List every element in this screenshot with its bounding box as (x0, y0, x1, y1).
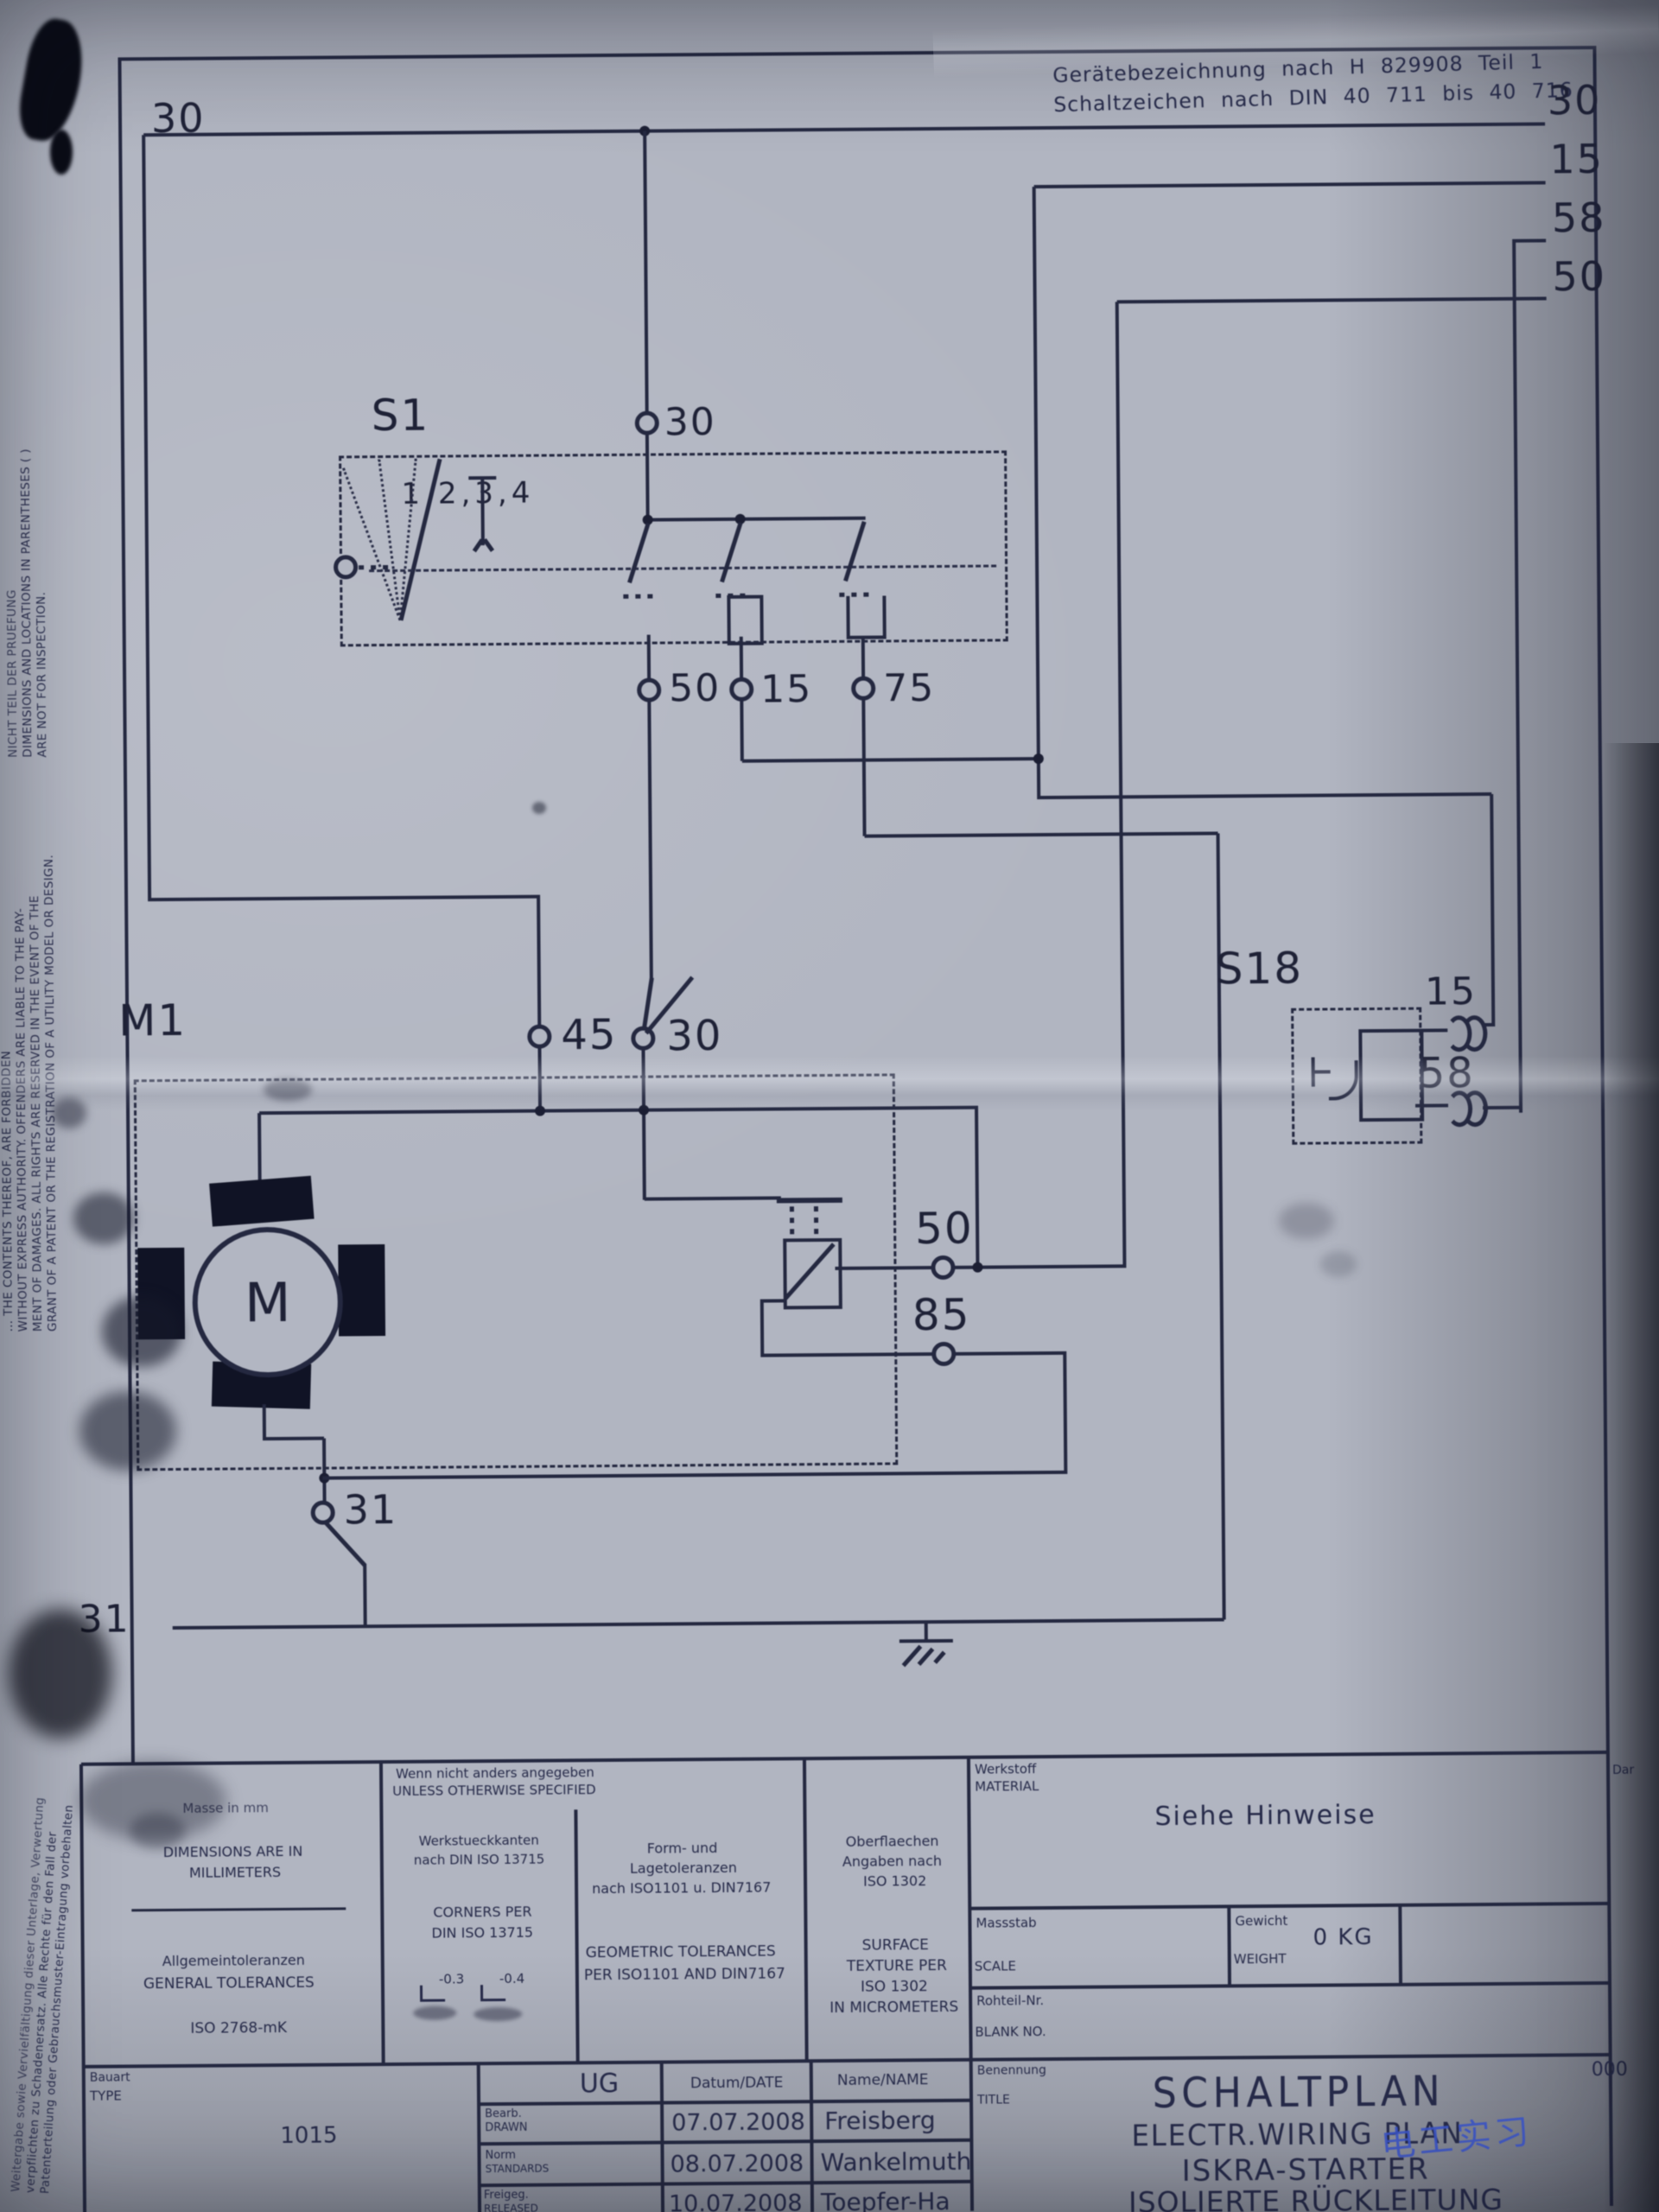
terminal-solenoid-50 (931, 1255, 955, 1280)
wire-segment (322, 1439, 327, 1504)
edge-symbol-icon (420, 1986, 445, 2002)
gen-tol-de: Allgemeintoleranzen (162, 1952, 305, 1969)
terminal-solenoid-85-label: 85 (912, 1290, 971, 1341)
wire-segment (660, 2063, 664, 2212)
row-std-role-de: Norm (485, 2149, 516, 2162)
s1-contact-bracket (846, 595, 886, 639)
surf-en4: IN MICROMETERS (829, 1999, 958, 2017)
row-rel-role-de: Freigeg. (484, 2189, 529, 2202)
terminal-s1-75-label: 75 (883, 666, 935, 710)
wire-segment (742, 757, 1040, 763)
terminal-s1-30 (635, 411, 659, 435)
motor-brush (209, 1176, 315, 1227)
edge-note-partial: Dar (1612, 1764, 1634, 1777)
motor-symbol: M (192, 1226, 343, 1377)
row-rel-date: 10.07.2008 (669, 2190, 803, 2212)
dims-note-en2: MILLIMETERS (189, 1864, 281, 1881)
doc-number-partial: 000 (1592, 2059, 1628, 2081)
wire-segment (149, 895, 540, 902)
drawing-title-line1: SCHALTPLAN (1152, 2067, 1445, 2118)
s1-positions: 1,2,3,4 (401, 476, 534, 512)
edge-symbol-icon (480, 1985, 505, 2001)
row-rel-name: Toepfer-Ha (821, 2187, 950, 2212)
terminal-s1-30-label: 30 (664, 400, 716, 444)
form-en2: PER ISO1101 AND DIN7167 (584, 1965, 785, 1984)
solenoid-coil (783, 1238, 842, 1310)
gen-tol-std: ISO 2768-mK (190, 2019, 287, 2037)
wire-segment (861, 636, 865, 680)
wire-segment (1033, 187, 1041, 799)
wire-segment (379, 1762, 385, 2064)
wire-segment (1039, 792, 1491, 799)
wire-segment (925, 1622, 928, 1643)
unless-de: Wenn nicht anders angegeben (396, 1764, 594, 1782)
terminal-s1-75 (851, 677, 875, 701)
wire-segment (740, 701, 744, 761)
corners-en2: DIN ISO 13715 (431, 1924, 533, 1942)
wire-segment (142, 135, 151, 901)
wire-segment (1033, 753, 1044, 764)
wire-segment (760, 1300, 765, 1356)
type-label-de: Bauart (90, 2070, 130, 2084)
wire-segment (865, 831, 1218, 837)
wire-segment (468, 476, 496, 480)
wire-segment (537, 897, 541, 1027)
ground-icon (899, 1639, 955, 1676)
wire-segment (814, 1206, 818, 1239)
wire-segment (643, 131, 649, 415)
motor-letter: M (245, 1270, 291, 1333)
corner-value-2: -0.4 (499, 1971, 524, 1986)
wire-segment (933, 1651, 945, 1664)
form-de1: Form- und (647, 1840, 718, 1857)
wire-segment (975, 1108, 979, 1269)
bus-label-31: 31 (78, 1597, 130, 1641)
title-label-de: Benennung (977, 2063, 1046, 2078)
row-rel-role-en: RELEASED (484, 2202, 538, 2212)
motor-brush (338, 1244, 385, 1336)
terminal-s1-15 (729, 677, 753, 702)
wire-segment (257, 1113, 262, 1181)
drawing-sheet: Gerätebezeichnung nach H 829908 Teil 1 S… (0, 0, 1659, 2212)
wire-segment (143, 122, 1545, 137)
wire-segment (1490, 794, 1495, 1027)
wire-segment (970, 1981, 1610, 1990)
wire-segment (359, 565, 388, 569)
wire-segment (790, 1206, 794, 1239)
bus-label-15-right: 15 (1549, 136, 1604, 182)
wire-segment (1117, 296, 1547, 303)
margin-note-legal-de: Weitergabe sowie Vervielfältigung dieser… (9, 1640, 87, 2195)
s1-rotor-icon (334, 555, 358, 579)
wire-segment (480, 2180, 972, 2187)
wire-segment (740, 637, 743, 681)
wire-segment (803, 1758, 809, 2061)
terminal-s1-50 (637, 678, 661, 702)
corners-de2: nach DIN ISO 13715 (414, 1852, 545, 1868)
wire-segment (477, 2063, 481, 2212)
s1-label: S1 (371, 391, 429, 442)
drawing-title-line4: ISOLIERTE RÜCKLEITUNG (1128, 2183, 1503, 2212)
material-label-de: Werkstoff (975, 1761, 1036, 1777)
dims-note-de: Masse in mm (182, 1800, 269, 1816)
scanned-wiring-diagram-photo: Gerätebezeichnung nach H 829908 Teil 1 S… (0, 0, 1659, 2212)
terminal-s1-15-label: 15 (760, 667, 812, 711)
wire-segment (969, 1902, 1609, 1910)
weight-label-de: Gewicht (1235, 1913, 1287, 1929)
frame-left (118, 57, 135, 1765)
surf-de1: Oberflaechen (846, 1833, 939, 1850)
terminal-m1-30 (631, 1027, 655, 1051)
s1-contact-element (727, 595, 763, 645)
wire-segment (1034, 181, 1546, 188)
row-std-name: Wankelmuth (820, 2147, 971, 2177)
wire-segment (760, 1299, 786, 1302)
wire-segment (1512, 238, 1546, 242)
terminal-m1-45-label: 45 (561, 1011, 618, 1060)
surf-en2: TEXTURE PER (847, 1957, 947, 1975)
form-en1: GEOMETRIC TOLERANCES (586, 1943, 776, 1962)
wire-segment (363, 1564, 367, 1626)
terminal-m1-45 (527, 1025, 551, 1049)
surf-de3: ISO 1302 (863, 1872, 926, 1890)
blank-no-label-de: Rohteil-Nr. (976, 1993, 1044, 2009)
wire-segment (1116, 302, 1127, 1268)
wire-segment (81, 1751, 1610, 1766)
material-value: Siehe Hinweise (1154, 1800, 1376, 1832)
wire-segment (264, 1437, 324, 1441)
corner-value-1: -0.3 (439, 1971, 464, 1986)
wire-segment (1482, 1023, 1493, 1027)
type-label-en: TYPE (90, 2088, 122, 2103)
dims-note-en1: DIMENSIONS ARE IN (163, 1843, 303, 1860)
wire-segment (623, 594, 658, 599)
wire-segment (810, 2061, 814, 2212)
margin-note-inspection: NICHT TEIL DER PRUEFUNG DIMENSIONS AND L… (3, 326, 50, 758)
name-header: Name/NAME (837, 2071, 929, 2089)
row-std-date: 08.07.2008 (670, 2150, 804, 2177)
form-de3: nach ISO1101 u. DIN7167 (592, 1879, 771, 1897)
s18-inner-box (1358, 1029, 1424, 1122)
corners-en1: CORNERS PER (433, 1904, 531, 1921)
wire-segment (574, 1809, 579, 2063)
date-header: Datum/DATE (690, 2074, 784, 2092)
form-de2: Lagetoleranzen (630, 1859, 737, 1877)
wire-segment (263, 1404, 266, 1440)
terminal-s1-50-label: 50 (669, 666, 721, 710)
wire-segment (322, 1471, 1067, 1480)
wire-segment (902, 1645, 922, 1667)
title-label-en: TITLE (977, 2093, 1010, 2107)
gen-tol-en: GENERAL TOLERANCES (143, 1974, 315, 1993)
terminal-s18-58-label: 58 (1419, 1049, 1476, 1098)
bus-label-58-right: 58 (1552, 194, 1606, 241)
connector-icon (1461, 1015, 1487, 1052)
material-label-en: MATERIAL (975, 1778, 1039, 1795)
bus-label-50-right: 50 (1552, 253, 1606, 300)
terminal-m1-30-label: 30 (666, 1012, 723, 1061)
wire-segment (413, 2005, 456, 2019)
wire-segment (972, 1262, 982, 1273)
row-std-role-en: STANDARDS (486, 2163, 550, 2176)
wire-segment (479, 2099, 971, 2106)
terminal-s18-15-label: 15 (1425, 969, 1477, 1014)
scale-label-de: Massstab (976, 1915, 1036, 1931)
terminal-m1-31-label: 31 (343, 1486, 397, 1533)
wire-segment (173, 1618, 1224, 1630)
terminal-solenoid-85 (931, 1342, 956, 1366)
row-drawn-role-de: Bearb. (485, 2107, 522, 2120)
wire-segment (84, 2053, 1612, 2069)
row-drawn-date: 07.07.2008 (671, 2108, 805, 2136)
wire-segment (79, 1764, 86, 2212)
wire-segment (639, 1105, 649, 1116)
wire-segment (641, 1049, 645, 1200)
margin-inspection-en2: ARE NOT FOR INSPECTION. (32, 326, 50, 758)
wire-segment (1415, 1103, 1448, 1107)
wire-segment (1414, 1028, 1447, 1032)
ug-label: UG (580, 2069, 619, 2099)
row-drawn-name: Freisberg (824, 2106, 936, 2135)
wire-segment (474, 2007, 522, 2021)
corners-de1: Werkstueckkanten (419, 1833, 539, 1849)
wire-segment (967, 1758, 974, 2211)
title-block: Masse in mm DIMENSIONS ARE IN MILLIMETER… (0, 0, 1650, 7)
s18-label: S18 (1216, 944, 1304, 995)
wire-segment (1063, 1353, 1067, 1472)
header-note: Gerätebezeichnung nach H 829908 Teil 1 S… (1052, 46, 1573, 119)
type-value: 1015 (280, 2123, 337, 2150)
margin-note-legal-en: … THE CONTENTS THEREOF, ARE FORBIDDEN WI… (0, 735, 60, 1332)
terminal-solenoid-50-label: 50 (915, 1204, 974, 1255)
motor-brush (137, 1248, 185, 1339)
scale-label-en: SCALE (975, 1958, 1016, 1974)
wire-segment (479, 2139, 971, 2145)
wire-segment (1227, 1906, 1231, 1986)
wire-segment (1312, 1070, 1331, 1073)
surf-de2: Angaben nach (842, 1853, 942, 1870)
wire-segment (777, 1198, 842, 1204)
m1-label: M1 (118, 995, 187, 1046)
wire-segment (647, 702, 653, 980)
unless-en: UNLESS OTHERWISE SPECIFIED (392, 1782, 596, 1799)
bus-label-30-right: 30 (1548, 77, 1602, 124)
wire-segment (131, 1907, 346, 1911)
surf-en1: SURFACE (862, 1936, 929, 1955)
wire-segment (1398, 1905, 1402, 1985)
wire-segment (647, 635, 651, 682)
wire-segment (918, 1648, 934, 1666)
wire-segment (861, 700, 866, 836)
wire-segment (537, 1048, 542, 1113)
surf-en3: ISO 1302 (861, 1978, 928, 1996)
wire-segment (535, 1106, 545, 1116)
blank-no-label-en: BLANK NO. (975, 2024, 1046, 2040)
weight-value: 0 KG (1313, 1924, 1373, 1951)
wire-segment (1483, 1106, 1522, 1109)
weight-label-en: WEIGHT (1234, 1951, 1287, 1967)
frame-right (1592, 46, 1613, 2206)
wire-segment (1512, 241, 1522, 1113)
row-drawn-role-en: DRAWN (485, 2121, 527, 2134)
key-icon (480, 476, 485, 545)
